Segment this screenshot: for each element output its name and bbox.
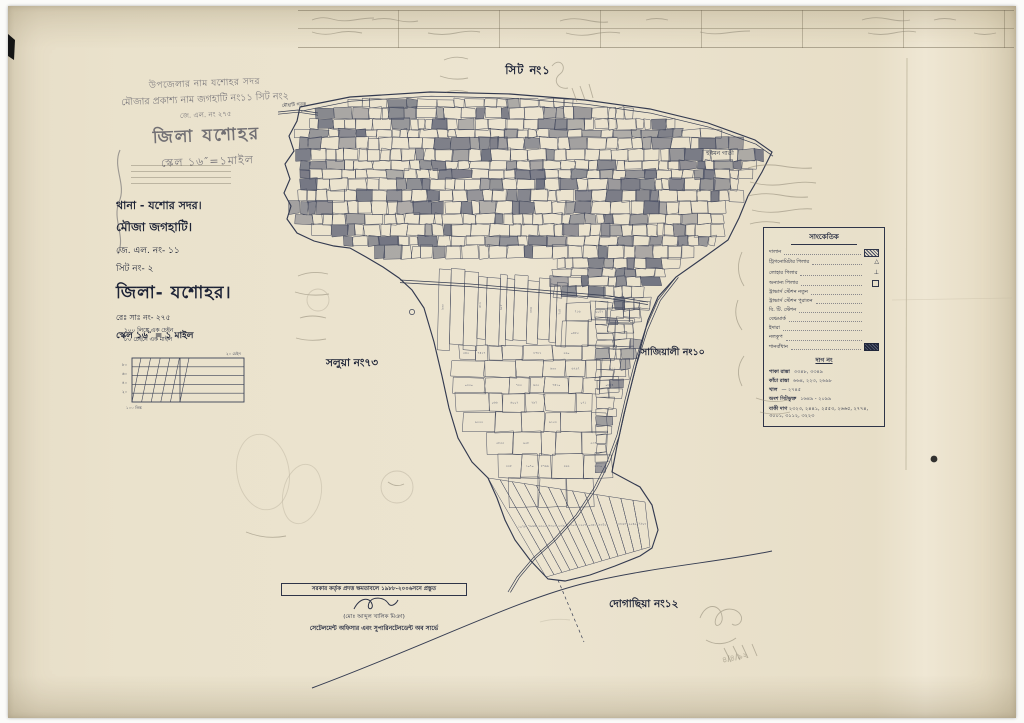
pencil-scribble-group [231,18,996,662]
stamp-bracket [117,150,121,254]
scanned-map-page: ৯৩৩৪১৩৬৫৮৮৮৪৭৫৪৭১৬০০৪২০৪৮৫৩৪২৭৪১৭৮৭৮১২৬০… [0,0,1024,723]
ink-blot [931,456,938,463]
pencil-annotations [0,0,1024,723]
fold-crease-group [8,34,1012,470]
edge-tear-mark [8,34,15,60]
